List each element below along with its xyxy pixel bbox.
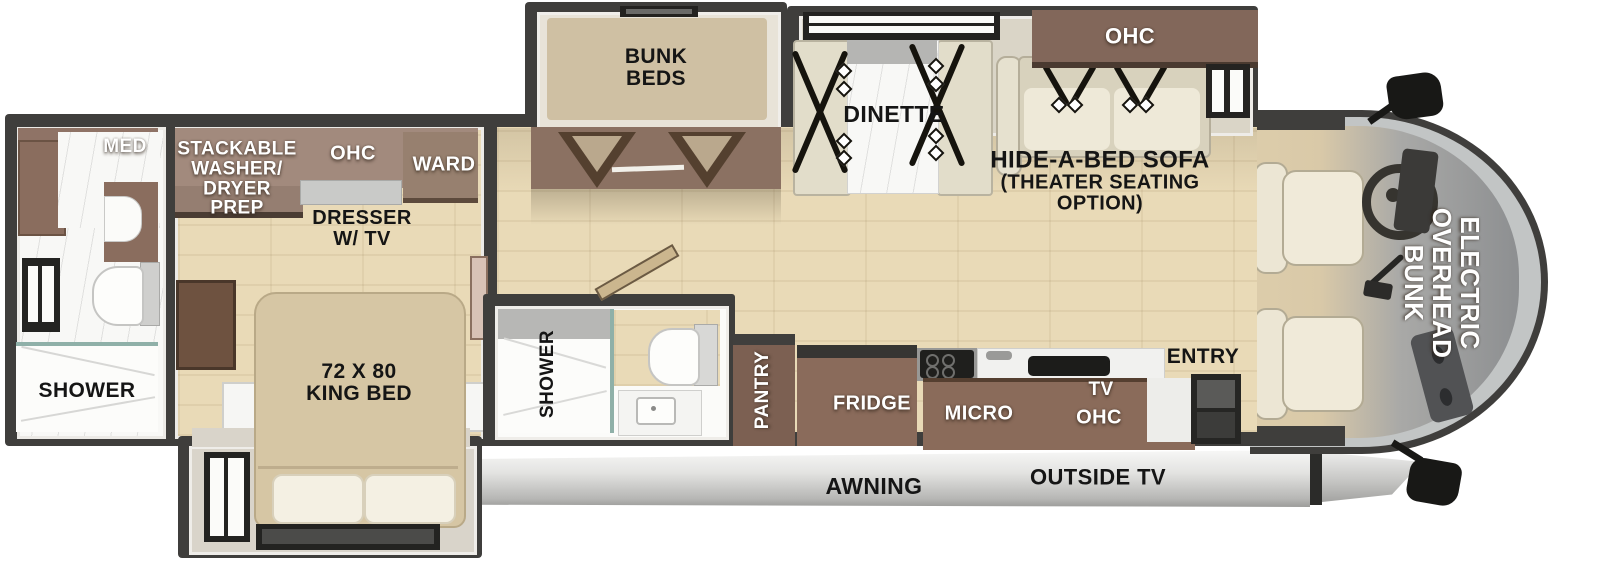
- overhead-bunk-line1: ELECTRIC: [1456, 208, 1484, 359]
- bunk-beds-label: BUNK BEDS: [625, 46, 687, 90]
- sofa-side-window-pane2: [1230, 70, 1243, 112]
- rv-floorplan: AWNING OUTSIDE TV ELECTRIC OVERHEAD BUNK: [0, 0, 1600, 567]
- mid-bath-sink-drain: [651, 406, 656, 411]
- sofa-label-line1: HIDE-A-BED SOFA: [990, 147, 1209, 172]
- entry-step-bottom: [1197, 412, 1235, 438]
- cab-top-wall: [1250, 112, 1345, 130]
- bunk-beds-line1: BUNK: [625, 46, 687, 68]
- king-bed-fold-line: [258, 466, 458, 469]
- bunk-slide-latch-inner: [626, 9, 692, 14]
- bed-slide-end-window-inner: [262, 529, 434, 544]
- washer-dryer-line3: DRYER: [177, 179, 296, 199]
- sofa-ohc-label: OHC: [1105, 24, 1155, 47]
- micro-label: MICRO: [945, 404, 1014, 425]
- mid-bath-sink: [636, 397, 676, 425]
- washer-dryer-line1: STACKABLE: [177, 140, 296, 160]
- sofa-side-window-pane1: [1212, 70, 1224, 112]
- awning-label: AWNING: [826, 474, 923, 498]
- dinette-window-pane1: [809, 16, 994, 23]
- fridge-label: FRIDGE: [833, 394, 911, 415]
- kitchen-tv: [1028, 356, 1110, 376]
- sofa-label-line3: OPTION): [990, 194, 1209, 215]
- pantry-label: PANTRY: [753, 351, 773, 429]
- med-label: MED: [103, 137, 146, 157]
- rear-bath-window-pane1: [28, 266, 38, 322]
- washer-dryer-line4: PREP: [177, 199, 296, 219]
- kitchen-faucet: [986, 351, 1012, 360]
- bottom-mirror-icon: [1405, 456, 1464, 508]
- sofa-label-line2: (THEATER SEATING: [990, 173, 1209, 194]
- bed-slide-window-pane2: [228, 458, 244, 536]
- bed-slide-window-pane1: [210, 458, 224, 536]
- king-bed-line2: KING BED: [306, 383, 412, 405]
- dinette-bench-top: [847, 40, 937, 64]
- washer-dryer-label: STACKABLE WASHER/ DRYER PREP: [177, 140, 296, 219]
- king-bed-label: 72 X 80 KING BED: [306, 361, 412, 405]
- ward-label: WARD: [413, 155, 476, 176]
- cab-bottom-wall: [1250, 426, 1345, 446]
- dinette-window-pane2: [809, 26, 994, 33]
- king-bed-line1: 72 X 80: [306, 361, 412, 383]
- mid-shower-glass-door: [610, 309, 614, 433]
- hide-a-bed-sofa-label: HIDE-A-BED SOFA (THEATER SEATING OPTION): [990, 147, 1209, 214]
- awning-divider: [1310, 450, 1322, 505]
- rear-shower-label: SHOWER: [39, 380, 136, 402]
- overhead-bunk-line2: OVERHEAD: [1428, 208, 1456, 359]
- outside-tv-label: OUTSIDE TV: [1030, 465, 1166, 488]
- dresser-counter: [300, 180, 402, 205]
- tv-label: TV: [1088, 380, 1113, 400]
- top-mirror-icon: [1385, 70, 1445, 121]
- rear-toilet-bowl: [92, 266, 144, 326]
- dresser-label: DRESSER W/ TV: [312, 208, 412, 250]
- bunk-beds-line2: BEDS: [625, 68, 687, 90]
- dresser-line2: W/ TV: [312, 229, 412, 250]
- electric-overhead-bunk-label: ELECTRIC OVERHEAD BUNK: [1400, 208, 1484, 359]
- kitchen-ohc-label: OHC: [1076, 408, 1122, 429]
- bedroom-ohc-label: OHC: [330, 144, 376, 165]
- rear-bath-sink: [104, 196, 142, 242]
- entry-step-top: [1197, 380, 1235, 408]
- closet-shadow: [531, 189, 781, 225]
- entry-label: ENTRY: [1167, 346, 1239, 368]
- passenger-seat-cushion: [1282, 316, 1364, 412]
- mid-shower-label: SHOWER: [538, 330, 558, 418]
- entry-landing: [1147, 378, 1191, 442]
- dinette-label: DINETTE: [843, 102, 944, 126]
- hanger-icon-right-inner: [682, 136, 732, 172]
- mid-toilet-bowl: [648, 328, 700, 386]
- rear-bath-window-pane2: [42, 266, 54, 322]
- washer-dryer-line2: WASHER/: [177, 159, 296, 179]
- driver-seat-cushion: [1282, 170, 1364, 266]
- pantry-top-band: [733, 334, 795, 345]
- overhead-bunk-line3: BUNK: [1400, 208, 1428, 359]
- bedroom-wardrobe: [176, 280, 236, 370]
- pillow-left: [272, 474, 364, 524]
- dresser-line1: DRESSER: [312, 208, 412, 229]
- sofa-cushion-right: [1114, 88, 1200, 150]
- pillow-right: [364, 474, 456, 524]
- fridge-top-band: [797, 345, 917, 358]
